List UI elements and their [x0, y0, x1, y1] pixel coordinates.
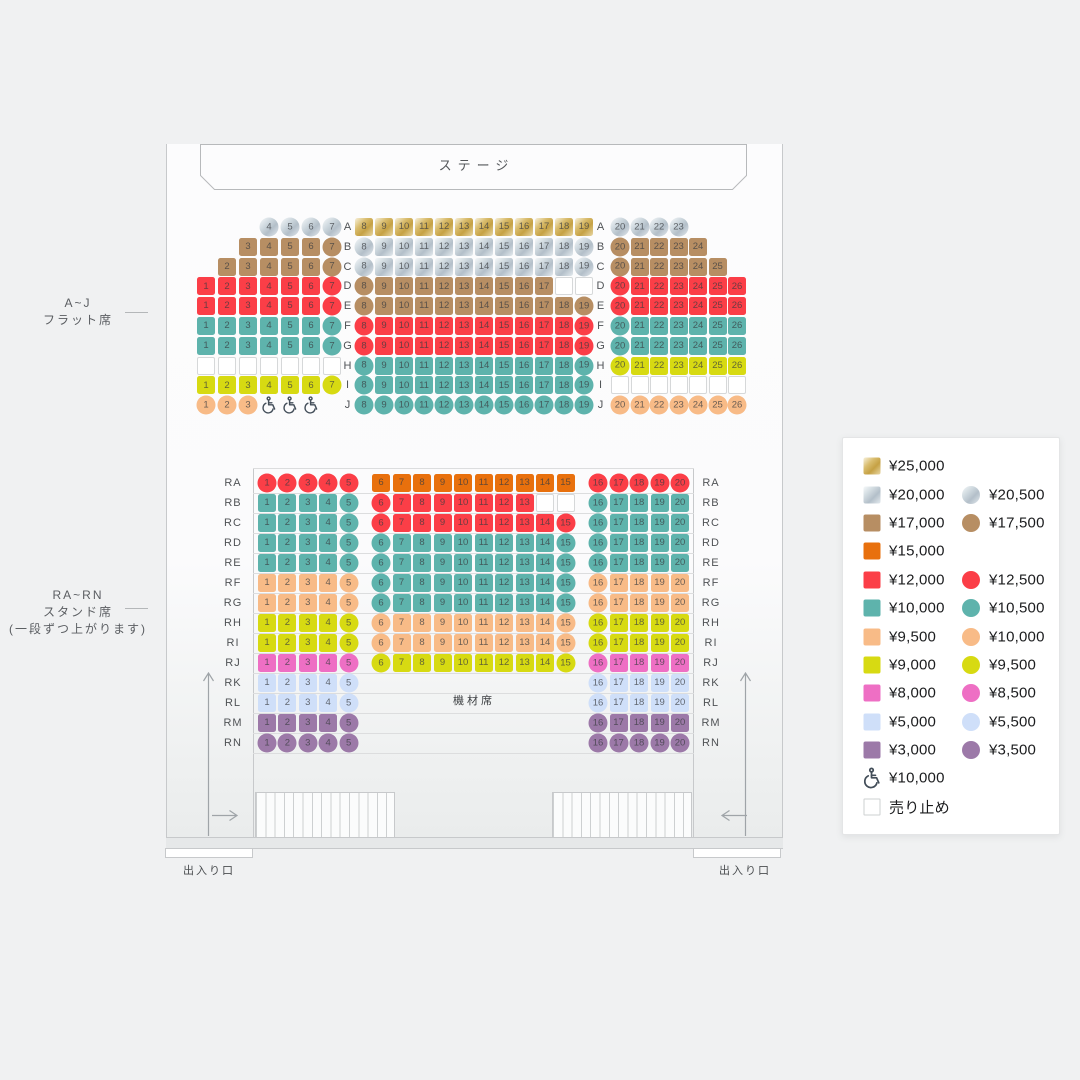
seat-RG-15[interactable]: 15: [556, 594, 575, 613]
seat-RJ-2[interactable]: 2: [278, 654, 296, 672]
seat-C-17[interactable]: 17: [535, 258, 553, 276]
seat-A-4[interactable]: 4: [260, 218, 279, 237]
seat-G-13[interactable]: 13: [455, 337, 473, 355]
seat-D-9[interactable]: 9: [375, 277, 393, 295]
seat-RE-11[interactable]: 11: [475, 554, 493, 572]
seat-RF-6[interactable]: 6: [372, 574, 391, 593]
seat-RD-19[interactable]: 19: [651, 534, 669, 552]
seat-RH-11[interactable]: 11: [475, 614, 493, 632]
seat-RM-19[interactable]: 19: [651, 714, 669, 732]
seat-F-3[interactable]: 3: [239, 317, 257, 335]
seat-H-21[interactable]: 21: [631, 357, 649, 375]
seat-RE-14[interactable]: 14: [536, 554, 554, 572]
seat-RD-4[interactable]: 4: [319, 534, 337, 552]
seat-RC-8[interactable]: 8: [413, 514, 431, 532]
seat-F-25[interactable]: 25: [709, 317, 727, 335]
seat-E-20[interactable]: 20: [611, 297, 630, 316]
seat-E-9[interactable]: 9: [375, 297, 393, 315]
seat-RE-10[interactable]: 10: [454, 554, 472, 572]
seat-I-10[interactable]: 10: [395, 376, 413, 394]
seat-RI-14[interactable]: 14: [536, 634, 554, 652]
seat-RB-10[interactable]: 10: [454, 494, 472, 512]
seat-G-23[interactable]: 23: [670, 337, 688, 355]
seat-RG-18[interactable]: 18: [630, 594, 648, 612]
seat-RG-13[interactable]: 13: [516, 594, 534, 612]
seat-RI-8[interactable]: 8: [413, 634, 431, 652]
seat-D-2[interactable]: 2: [218, 277, 236, 295]
seat-J-16[interactable]: 16: [515, 396, 534, 415]
seat-RC-12[interactable]: 12: [495, 514, 513, 532]
seat-RE-12[interactable]: 12: [495, 554, 513, 572]
seat-A-8[interactable]: 8: [355, 218, 373, 236]
seat-RB-20[interactable]: 20: [671, 494, 689, 512]
seat-D-16[interactable]: 16: [515, 277, 533, 295]
seat-RJ-10[interactable]: 10: [454, 654, 472, 672]
seat-E-26[interactable]: 26: [728, 297, 746, 315]
seat-F-10[interactable]: 10: [395, 317, 413, 335]
seat-RI-5[interactable]: 5: [339, 634, 358, 653]
seat-G-22[interactable]: 22: [650, 337, 668, 355]
seat-RF-17[interactable]: 17: [610, 574, 628, 592]
seat-B-23[interactable]: 23: [670, 238, 688, 256]
seat-B-17[interactable]: 17: [535, 238, 553, 256]
seat-C-4[interactable]: 4: [260, 258, 278, 276]
seat-RH-13[interactable]: 13: [516, 614, 534, 632]
seat-D-6[interactable]: 6: [302, 277, 320, 295]
seat-J-2[interactable]: 2: [218, 396, 237, 415]
seat-RM-1[interactable]: 1: [258, 714, 276, 732]
seat-A-11[interactable]: 11: [415, 218, 433, 236]
seat-C-14[interactable]: 14: [475, 258, 493, 276]
seat-H-23[interactable]: 23: [670, 357, 688, 375]
seat-RJ-15[interactable]: 15: [556, 654, 575, 673]
seat-C-22[interactable]: 22: [650, 258, 668, 276]
seat-RI-6[interactable]: 6: [372, 634, 391, 653]
seat-RE-1[interactable]: 1: [258, 554, 276, 572]
seat-B-21[interactable]: 21: [631, 238, 649, 256]
seat-A-5[interactable]: 5: [281, 218, 300, 237]
seat-RC-7[interactable]: 7: [393, 514, 411, 532]
seat-RJ-11[interactable]: 11: [475, 654, 493, 672]
seat-I-14[interactable]: 14: [475, 376, 493, 394]
seat-C-3[interactable]: 3: [239, 258, 257, 276]
seat-A-15[interactable]: 15: [495, 218, 513, 236]
seat-A-6[interactable]: 6: [302, 218, 321, 237]
seat-D-24[interactable]: 24: [689, 277, 707, 295]
seat-G-15[interactable]: 15: [495, 337, 513, 355]
seat-D-7[interactable]: 7: [323, 277, 342, 296]
seat-B-16[interactable]: 16: [515, 238, 533, 256]
seat-D-4[interactable]: 4: [260, 277, 278, 295]
seat-RJ-7[interactable]: 7: [393, 654, 411, 672]
seat-G-19[interactable]: 19: [575, 336, 594, 355]
seat-J-1[interactable]: 1: [197, 396, 216, 415]
seat-E-5[interactable]: 5: [281, 297, 299, 315]
seat-RC-1[interactable]: 1: [258, 514, 276, 532]
seat-B-19[interactable]: 19: [575, 237, 594, 256]
seat-A-21[interactable]: 21: [630, 218, 649, 237]
seat-RE-2[interactable]: 2: [278, 554, 296, 572]
seat-RK-17[interactable]: 17: [610, 674, 628, 692]
seat-F-2[interactable]: 2: [218, 317, 236, 335]
seat-RB-18[interactable]: 18: [630, 494, 648, 512]
seat-E-8[interactable]: 8: [355, 297, 374, 316]
seat-C-6[interactable]: 6: [302, 258, 320, 276]
seat-RA-3[interactable]: 3: [298, 474, 317, 493]
seat-RJ-5[interactable]: 5: [339, 654, 358, 673]
seat-RD-14[interactable]: 14: [536, 534, 554, 552]
seat-RH-20[interactable]: 20: [671, 614, 689, 632]
seat-RD-1[interactable]: 1: [258, 534, 276, 552]
seat-RJ-1[interactable]: 1: [258, 654, 276, 672]
seat-RB-8[interactable]: 8: [413, 494, 431, 512]
seat-RG-19[interactable]: 19: [651, 594, 669, 612]
seat-RC-17[interactable]: 17: [610, 514, 628, 532]
seat-RA-2[interactable]: 2: [278, 474, 297, 493]
seat-RH-16[interactable]: 16: [589, 614, 608, 633]
seat-I-6[interactable]: 6: [302, 376, 320, 394]
seat-D-23[interactable]: 23: [670, 277, 688, 295]
seat-G-3[interactable]: 3: [239, 337, 257, 355]
seat-RA-14[interactable]: 14: [536, 474, 554, 492]
seat-RC-3[interactable]: 3: [299, 514, 317, 532]
seat-D-21[interactable]: 21: [631, 277, 649, 295]
seat-I-8[interactable]: 8: [355, 376, 374, 395]
seat-RE-6[interactable]: 6: [372, 554, 391, 573]
seat-RB-5[interactable]: 5: [339, 494, 358, 513]
seat-RK-19[interactable]: 19: [651, 674, 669, 692]
seat-RN-3[interactable]: 3: [298, 734, 317, 753]
seat-RM-16[interactable]: 16: [589, 714, 608, 733]
seat-I-11[interactable]: 11: [415, 376, 433, 394]
seat-RN-2[interactable]: 2: [278, 734, 297, 753]
seat-G-20[interactable]: 20: [611, 336, 630, 355]
seat-F-13[interactable]: 13: [455, 317, 473, 335]
seat-RC-11[interactable]: 11: [475, 514, 493, 532]
seat-RM-2[interactable]: 2: [278, 714, 296, 732]
seat-RE-8[interactable]: 8: [413, 554, 431, 572]
seat-B-18[interactable]: 18: [555, 238, 573, 256]
seat-RA-4[interactable]: 4: [319, 474, 338, 493]
seat-RA-20[interactable]: 20: [671, 474, 690, 493]
seat-F-11[interactable]: 11: [415, 317, 433, 335]
seat-D-20[interactable]: 20: [611, 277, 630, 296]
seat-RG-8[interactable]: 8: [413, 594, 431, 612]
seat-RF-10[interactable]: 10: [454, 574, 472, 592]
seat-RK-3[interactable]: 3: [299, 674, 317, 692]
seat-G-17[interactable]: 17: [535, 337, 553, 355]
seat-A-7[interactable]: 7: [323, 218, 342, 237]
seat-RJ-9[interactable]: 9: [434, 654, 452, 672]
seat-B-15[interactable]: 15: [495, 238, 513, 256]
seat-C-9[interactable]: 9: [375, 258, 393, 276]
seat-C-20[interactable]: 20: [611, 257, 630, 276]
seat-RN-1[interactable]: 1: [258, 734, 277, 753]
seat-RM-4[interactable]: 4: [319, 714, 337, 732]
seat-RB-6[interactable]: 6: [372, 494, 391, 513]
seat-RD-16[interactable]: 16: [589, 534, 608, 553]
seat-E-2[interactable]: 2: [218, 297, 236, 315]
seat-RN-18[interactable]: 18: [630, 734, 649, 753]
seat-RG-11[interactable]: 11: [475, 594, 493, 612]
seat-RD-13[interactable]: 13: [516, 534, 534, 552]
seat-RF-8[interactable]: 8: [413, 574, 431, 592]
seat-J-19[interactable]: 19: [575, 396, 594, 415]
seat-I-1[interactable]: 1: [197, 376, 215, 394]
seat-E-17[interactable]: 17: [535, 297, 553, 315]
seat-B-3[interactable]: 3: [239, 238, 257, 256]
seat-G-12[interactable]: 12: [435, 337, 453, 355]
seat-RG-12[interactable]: 12: [495, 594, 513, 612]
seat-G-2[interactable]: 2: [218, 337, 236, 355]
seat-J-21[interactable]: 21: [630, 396, 649, 415]
seat-D-15[interactable]: 15: [495, 277, 513, 295]
seat-RC-5[interactable]: 5: [339, 514, 358, 533]
seat-RF-12[interactable]: 12: [495, 574, 513, 592]
seat-RI-10[interactable]: 10: [454, 634, 472, 652]
seat-F-5[interactable]: 5: [281, 317, 299, 335]
seat-H-24[interactable]: 24: [689, 357, 707, 375]
seat-RF-7[interactable]: 7: [393, 574, 411, 592]
seat-RB-9[interactable]: 9: [434, 494, 452, 512]
seat-RC-6[interactable]: 6: [372, 514, 391, 533]
seat-RB-4[interactable]: 4: [319, 494, 337, 512]
seat-RJ-18[interactable]: 18: [630, 654, 648, 672]
seat-E-25[interactable]: 25: [709, 297, 727, 315]
seat-E-3[interactable]: 3: [239, 297, 257, 315]
seat-RC-9[interactable]: 9: [434, 514, 452, 532]
seat-RL-17[interactable]: 17: [610, 694, 628, 712]
seat-B-14[interactable]: 14: [475, 238, 493, 256]
seat-C-10[interactable]: 10: [395, 258, 413, 276]
seat-D-17[interactable]: 17: [535, 277, 553, 295]
seat-RJ-16[interactable]: 16: [589, 654, 608, 673]
seat-J-24[interactable]: 24: [689, 396, 708, 415]
seat-RA-12[interactable]: 12: [495, 474, 513, 492]
seat-D-10[interactable]: 10: [395, 277, 413, 295]
seat-J-26[interactable]: 26: [728, 396, 747, 415]
seat-RA-5[interactable]: 5: [339, 474, 358, 493]
seat-RG-3[interactable]: 3: [299, 594, 317, 612]
seat-RH-18[interactable]: 18: [630, 614, 648, 632]
seat-E-4[interactable]: 4: [260, 297, 278, 315]
seat-RE-5[interactable]: 5: [339, 554, 358, 573]
seat-RB-16[interactable]: 16: [589, 494, 608, 513]
seat-G-7[interactable]: 7: [323, 336, 342, 355]
seat-RF-13[interactable]: 13: [516, 574, 534, 592]
seat-RF-1[interactable]: 1: [258, 574, 276, 592]
seat-RE-20[interactable]: 20: [671, 554, 689, 572]
seat-C-7[interactable]: 7: [323, 257, 342, 276]
seat-D-1[interactable]: 1: [197, 277, 215, 295]
seat-A-9[interactable]: 9: [375, 218, 393, 236]
seat-A-20[interactable]: 20: [611, 218, 630, 237]
seat-RI-16[interactable]: 16: [589, 634, 608, 653]
seat-H-16[interactable]: 16: [515, 357, 533, 375]
seat-RB-2[interactable]: 2: [278, 494, 296, 512]
seat-RN-19[interactable]: 19: [650, 734, 669, 753]
seat-B-24[interactable]: 24: [689, 238, 707, 256]
seat-RG-1[interactable]: 1: [258, 594, 276, 612]
seat-RI-15[interactable]: 15: [556, 634, 575, 653]
seat-RE-18[interactable]: 18: [630, 554, 648, 572]
seat-RH-19[interactable]: 19: [651, 614, 669, 632]
seat-D-8[interactable]: 8: [355, 277, 374, 296]
seat-I-13[interactable]: 13: [455, 376, 473, 394]
seat-I-17[interactable]: 17: [535, 376, 553, 394]
seat-E-1[interactable]: 1: [197, 297, 215, 315]
seat-RH-9[interactable]: 9: [434, 614, 452, 632]
seat-I-15[interactable]: 15: [495, 376, 513, 394]
seat-RD-7[interactable]: 7: [393, 534, 411, 552]
seat-RJ-19[interactable]: 19: [651, 654, 669, 672]
seat-RD-10[interactable]: 10: [454, 534, 472, 552]
seat-G-11[interactable]: 11: [415, 337, 433, 355]
seat-RB-19[interactable]: 19: [651, 494, 669, 512]
seat-H-26[interactable]: 26: [728, 357, 746, 375]
seat-RI-11[interactable]: 11: [475, 634, 493, 652]
seat-J-15[interactable]: 15: [495, 396, 514, 415]
seat-RM-3[interactable]: 3: [299, 714, 317, 732]
seat-A-19[interactable]: 19: [575, 218, 593, 236]
seat-RL-20[interactable]: 20: [671, 694, 689, 712]
seat-RJ-6[interactable]: 6: [372, 654, 391, 673]
seat-J-12[interactable]: 12: [435, 396, 454, 415]
seat-RH-17[interactable]: 17: [610, 614, 628, 632]
seat-RE-4[interactable]: 4: [319, 554, 337, 572]
seat-J-25[interactable]: 25: [708, 396, 727, 415]
seat-RI-13[interactable]: 13: [516, 634, 534, 652]
seat-F-1[interactable]: 1: [197, 317, 215, 335]
seat-RD-5[interactable]: 5: [339, 534, 358, 553]
seat-RH-1[interactable]: 1: [258, 614, 276, 632]
seat-F-4[interactable]: 4: [260, 317, 278, 335]
seat-G-14[interactable]: 14: [475, 337, 493, 355]
seat-RK-5[interactable]: 5: [339, 674, 358, 693]
seat-C-21[interactable]: 21: [631, 258, 649, 276]
seat-E-18[interactable]: 18: [555, 297, 573, 315]
seat-RG-20[interactable]: 20: [671, 594, 689, 612]
seat-RG-9[interactable]: 9: [434, 594, 452, 612]
seat-RD-15[interactable]: 15: [556, 534, 575, 553]
seat-RG-5[interactable]: 5: [339, 594, 358, 613]
seat-D-3[interactable]: 3: [239, 277, 257, 295]
seat-RF-19[interactable]: 19: [651, 574, 669, 592]
seat-RJ-8[interactable]: 8: [413, 654, 431, 672]
seat-D-12[interactable]: 12: [435, 277, 453, 295]
seat-A-23[interactable]: 23: [669, 218, 688, 237]
seat-C-15[interactable]: 15: [495, 258, 513, 276]
seat-J-wheelchair[interactable]: [281, 396, 300, 415]
seat-RN-4[interactable]: 4: [319, 734, 338, 753]
seat-G-25[interactable]: 25: [709, 337, 727, 355]
seat-RL-19[interactable]: 19: [651, 694, 669, 712]
seat-RK-2[interactable]: 2: [278, 674, 296, 692]
seat-RB-12[interactable]: 12: [495, 494, 513, 512]
seat-RF-11[interactable]: 11: [475, 574, 493, 592]
seat-RI-20[interactable]: 20: [671, 634, 689, 652]
seat-F-8[interactable]: 8: [355, 317, 374, 336]
seat-G-1[interactable]: 1: [197, 337, 215, 355]
seat-J-20[interactable]: 20: [611, 396, 630, 415]
seat-H-19[interactable]: 19: [575, 356, 594, 375]
seat-H-17[interactable]: 17: [535, 357, 553, 375]
seat-F-16[interactable]: 16: [515, 317, 533, 335]
seat-RH-14[interactable]: 14: [536, 614, 554, 632]
seat-RE-19[interactable]: 19: [651, 554, 669, 572]
seat-J-22[interactable]: 22: [650, 396, 669, 415]
seat-F-23[interactable]: 23: [670, 317, 688, 335]
seat-B-11[interactable]: 11: [415, 238, 433, 256]
seat-I-7[interactable]: 7: [323, 376, 342, 395]
seat-RG-16[interactable]: 16: [589, 594, 608, 613]
seat-B-7[interactable]: 7: [323, 237, 342, 256]
seat-RA-17[interactable]: 17: [609, 474, 628, 493]
seat-RL-16[interactable]: 16: [589, 694, 608, 713]
seat-A-12[interactable]: 12: [435, 218, 453, 236]
seat-RI-2[interactable]: 2: [278, 634, 296, 652]
seat-RD-18[interactable]: 18: [630, 534, 648, 552]
seat-RE-7[interactable]: 7: [393, 554, 411, 572]
seat-RG-6[interactable]: 6: [372, 594, 391, 613]
seat-RH-5[interactable]: 5: [339, 614, 358, 633]
seat-RF-20[interactable]: 20: [671, 574, 689, 592]
seat-F-15[interactable]: 15: [495, 317, 513, 335]
seat-E-14[interactable]: 14: [475, 297, 493, 315]
seat-J-11[interactable]: 11: [415, 396, 434, 415]
seat-RD-3[interactable]: 3: [299, 534, 317, 552]
seat-RH-3[interactable]: 3: [299, 614, 317, 632]
seat-E-15[interactable]: 15: [495, 297, 513, 315]
seat-I-4[interactable]: 4: [260, 376, 278, 394]
seat-F-17[interactable]: 17: [535, 317, 553, 335]
seat-RG-14[interactable]: 14: [536, 594, 554, 612]
seat-RM-20[interactable]: 20: [671, 714, 689, 732]
seat-G-18[interactable]: 18: [555, 337, 573, 355]
seat-B-8[interactable]: 8: [355, 237, 374, 256]
seat-J-18[interactable]: 18: [555, 396, 574, 415]
seat-J-13[interactable]: 13: [455, 396, 474, 415]
seat-G-24[interactable]: 24: [689, 337, 707, 355]
seat-E-21[interactable]: 21: [631, 297, 649, 315]
seat-RC-18[interactable]: 18: [630, 514, 648, 532]
seat-RD-6[interactable]: 6: [372, 534, 391, 553]
seat-RH-6[interactable]: 6: [372, 614, 391, 633]
seat-C-13[interactable]: 13: [455, 258, 473, 276]
seat-B-12[interactable]: 12: [435, 238, 453, 256]
seat-RI-9[interactable]: 9: [434, 634, 452, 652]
seat-E-23[interactable]: 23: [670, 297, 688, 315]
seat-B-10[interactable]: 10: [395, 238, 413, 256]
seat-I-9[interactable]: 9: [375, 376, 393, 394]
seat-RD-8[interactable]: 8: [413, 534, 431, 552]
seat-H-11[interactable]: 11: [415, 357, 433, 375]
seat-RC-2[interactable]: 2: [278, 514, 296, 532]
seat-F-7[interactable]: 7: [323, 317, 342, 336]
seat-RA-16[interactable]: 16: [589, 474, 608, 493]
seat-D-14[interactable]: 14: [475, 277, 493, 295]
seat-RK-20[interactable]: 20: [671, 674, 689, 692]
seat-F-6[interactable]: 6: [302, 317, 320, 335]
seat-E-7[interactable]: 7: [323, 297, 342, 316]
seat-RJ-17[interactable]: 17: [610, 654, 628, 672]
seat-RA-13[interactable]: 13: [516, 474, 534, 492]
seat-B-22[interactable]: 22: [650, 238, 668, 256]
seat-RC-16[interactable]: 16: [589, 514, 608, 533]
seat-B-20[interactable]: 20: [611, 237, 630, 256]
seat-RC-20[interactable]: 20: [671, 514, 689, 532]
seat-RH-12[interactable]: 12: [495, 614, 513, 632]
